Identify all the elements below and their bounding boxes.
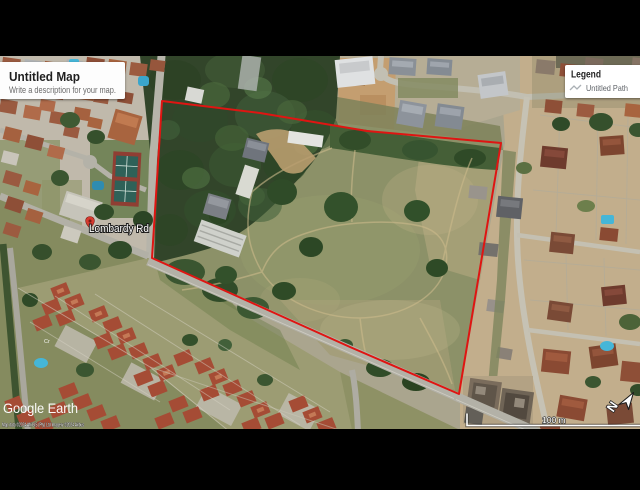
svg-text:100 m: 100 m [542, 415, 566, 425]
svg-text:Map data ©2024 AfriGIS (Pty) L: Map data ©2024 AfriGIS (Pty) Ltd Imagery… [2, 422, 84, 429]
svg-text:Lombardy Rd: Lombardy Rd [89, 223, 149, 235]
svg-text:Untitled Path: Untitled Path [586, 83, 628, 93]
svg-text:Cr: Cr [44, 339, 50, 345]
svg-text:Legend: Legend [571, 70, 601, 81]
svg-text:Google Earth: Google Earth [3, 400, 78, 416]
svg-text:Write a description for your m: Write a description for your map. [9, 85, 116, 95]
svg-text:Untitled Map: Untitled Map [9, 69, 80, 84]
